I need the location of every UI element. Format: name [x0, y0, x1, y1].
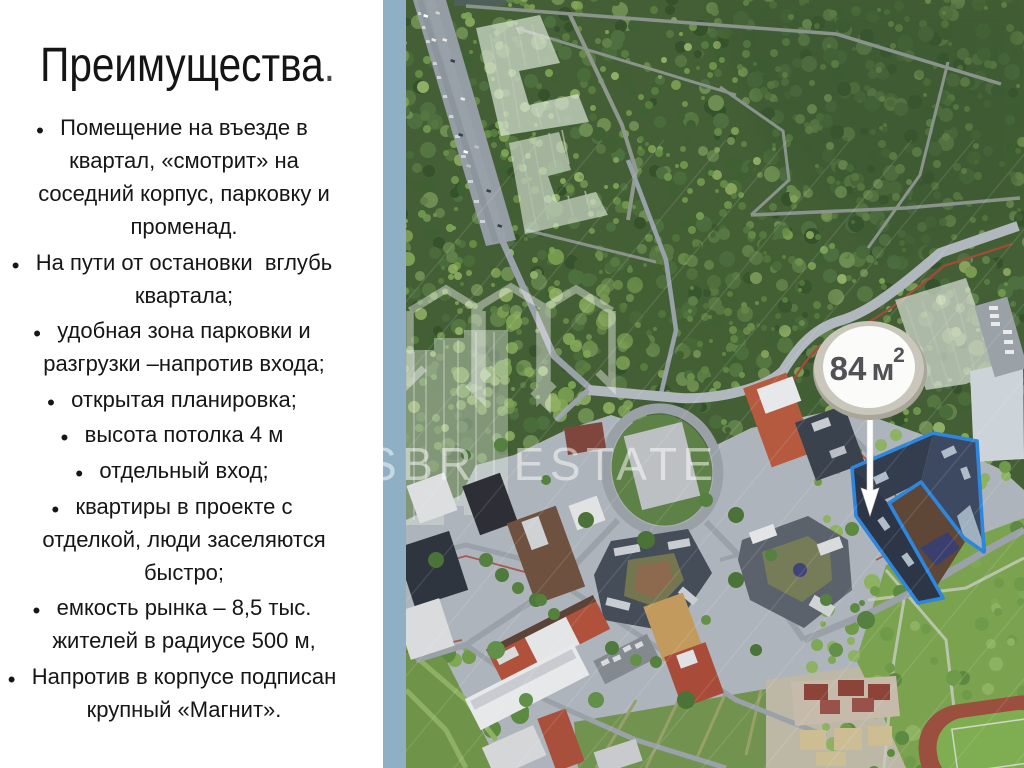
svg-text:м: м — [872, 352, 895, 387]
svg-text:84: 84 — [830, 350, 867, 387]
svg-text:2: 2 — [893, 344, 905, 367]
